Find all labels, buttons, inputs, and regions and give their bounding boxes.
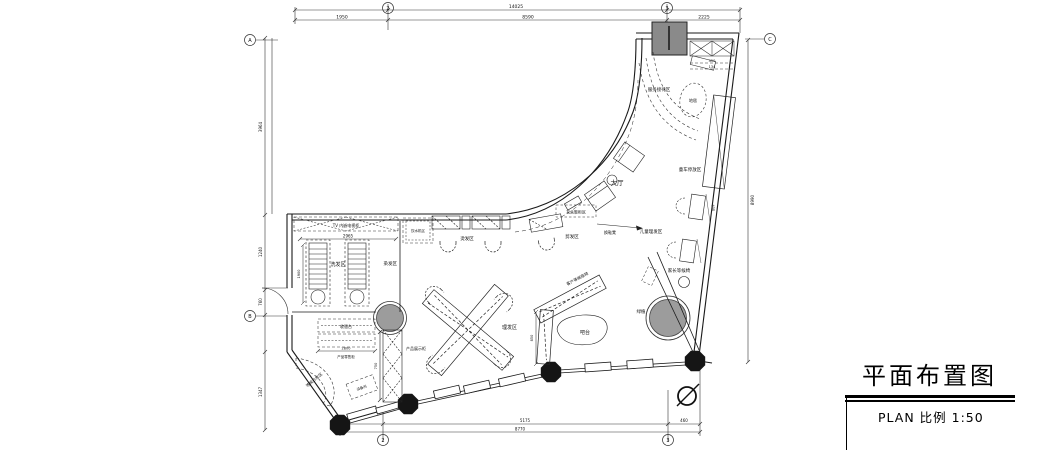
axis-b: B xyxy=(248,314,252,320)
label-reception: 服务接待区 xyxy=(648,86,671,93)
cad-floor-plan-screenshot: 14025 1950 8590 2225 5175 460 8770 3964 … xyxy=(0,0,1060,450)
column-octagon xyxy=(398,394,418,414)
title-rule-thin xyxy=(845,400,1015,402)
label-stroller: 童车停放区 xyxy=(679,166,702,173)
dim-left-4: 1347 xyxy=(258,386,263,397)
label-equipment: 设备间 xyxy=(356,383,368,391)
title-block-vertical-line xyxy=(846,396,847,450)
dim-bottom-2: 460 xyxy=(680,418,688,423)
label-tv-wall: TV 内嵌电视柜 xyxy=(332,222,359,228)
round-column xyxy=(377,305,404,332)
drawing-scale: PLAN 比例 1:50 xyxy=(845,407,1015,426)
dim-strip: 750 xyxy=(374,363,378,370)
label-retail: 产品零售柜 xyxy=(337,354,355,359)
axis-c: C xyxy=(768,37,772,43)
dim-hatch-1: 450 xyxy=(709,59,716,63)
dim-cashier: 2800 xyxy=(342,347,351,351)
axis-a: A xyxy=(248,38,252,44)
display-cabinet-strip xyxy=(378,330,402,402)
label-parent-chair: 家长等候椅 xyxy=(668,267,691,274)
label-styling: 理发区 xyxy=(502,324,517,331)
dim-left-3: 760 xyxy=(258,298,263,306)
shampoo-beds xyxy=(301,240,369,306)
wall-display-cabinet xyxy=(702,95,735,189)
title-rule-thick xyxy=(845,395,1015,398)
column-octagon xyxy=(541,362,561,382)
partitions xyxy=(292,221,699,352)
dim-bottom-1: 5175 xyxy=(520,418,531,423)
label-lobby: 大厅 xyxy=(611,178,625,187)
drawing-title: 平面布置图 xyxy=(845,356,1015,391)
dim-bar: 850 xyxy=(530,335,534,342)
storefront-glazing xyxy=(349,362,686,423)
label-perm: 烫发区 xyxy=(460,235,474,242)
section-symbol xyxy=(677,384,699,406)
column-octagon xyxy=(685,351,705,371)
axis-2-bottom: 2 xyxy=(381,438,384,444)
axis-3-top: 3 xyxy=(665,6,668,12)
dim-top-1: 1950 xyxy=(336,15,348,21)
dim-top-2: 8590 xyxy=(522,15,534,21)
window-mullions xyxy=(433,359,653,399)
dim-hatch-2: 134 xyxy=(709,65,716,69)
dim-left-2: 1240 xyxy=(258,246,263,257)
title-block: 平面布置图 PLAN 比例 1:50 xyxy=(845,356,1015,426)
label-counter-wait: 客户等候座椅 xyxy=(565,270,589,287)
dim-top-total: 14025 xyxy=(509,4,523,10)
label-cutting: 剪发区 xyxy=(565,233,579,240)
styling-chairs xyxy=(440,237,556,252)
wait-counter xyxy=(534,275,607,366)
dim-top-3: 2225 xyxy=(698,15,710,21)
label-cashier: 收银台 xyxy=(340,323,352,329)
label-kids-cut: 儿童理发区 xyxy=(640,228,663,235)
side-door-swing xyxy=(262,288,288,314)
columns xyxy=(330,22,705,435)
dim-tv: 2965 xyxy=(343,234,354,239)
label-water: 饮水机区 xyxy=(411,228,425,233)
dim-bottom-total: 8770 xyxy=(515,427,526,432)
dim-left-1: 3964 xyxy=(258,121,263,132)
reception-area xyxy=(639,52,716,140)
dim-right-1: 8990 xyxy=(750,194,755,205)
dim-bed: 1900 xyxy=(297,270,301,279)
label-plant: 绿植 xyxy=(637,308,646,315)
column-octagon xyxy=(330,415,350,435)
label-bar: 吧台 xyxy=(580,329,590,336)
label-washing: 洗发区 xyxy=(330,261,345,268)
label-rug: 地毯 xyxy=(689,97,697,103)
label-shoe-bench: 换鞋凳 xyxy=(604,229,616,235)
axis-3-bottom: 3 xyxy=(666,438,669,444)
round-column xyxy=(650,300,687,337)
label-showcase: 产品展示柜 xyxy=(406,345,426,351)
label-dyeing: 染发区 xyxy=(384,260,398,267)
styling-stations xyxy=(432,214,563,232)
axis-2-top: 2 xyxy=(386,6,389,12)
label-entry-cabinet: 玄关鞋柜区 xyxy=(566,209,586,215)
dimension-text: 14025 1950 8590 2225 5175 460 8770 3964 … xyxy=(258,4,755,432)
